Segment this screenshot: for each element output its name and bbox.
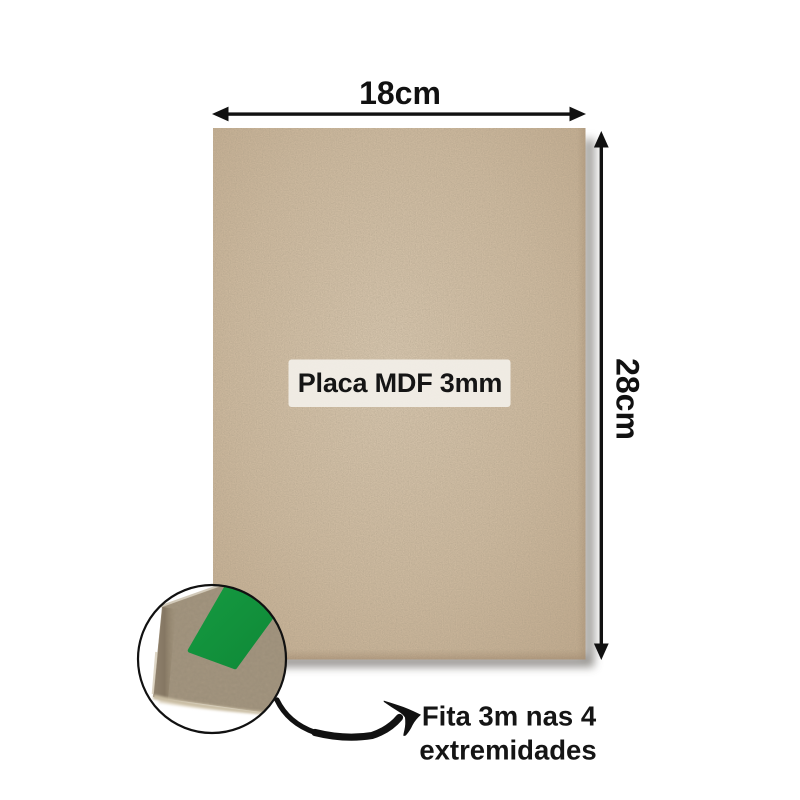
svg-text:Fita 3m nas 4: Fita 3m nas 4 — [422, 701, 597, 732]
svg-text:extremidades: extremidades — [419, 735, 596, 766]
svg-text:18cm: 18cm — [359, 75, 441, 111]
svg-text:Placa MDF 3mm: Placa MDF 3mm — [298, 368, 502, 398]
svg-text:28cm: 28cm — [610, 358, 646, 440]
